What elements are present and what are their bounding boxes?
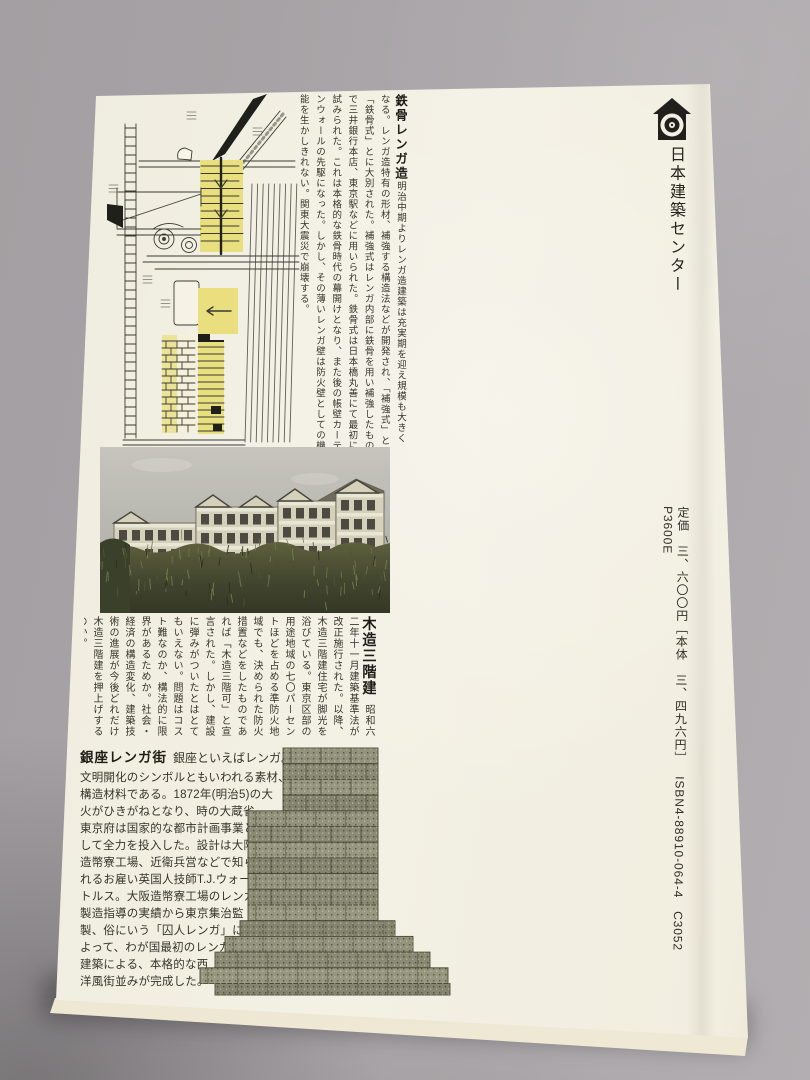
publisher-logo-icon — [652, 97, 692, 141]
book-cover: 鉄骨レンガ造明治中期よりレンガ造建築は充実期を迎え規模も大きくなる。レンガ造特有… — [0, 0, 810, 1080]
article-ginza-title: 銀座レンガ街 — [80, 750, 167, 765]
article-mokuzo-sangai: 木造三階建昭和六二年十一月建築基準法が改正施行された。以降、木造三階建住宅が脚光… — [84, 616, 376, 747]
price-text: 定価 三、六〇〇円［本体 三、四九六円］ — [673, 506, 690, 764]
book-back-cover-photo: 鉄骨レンガ造明治中期よりレンガ造建築は充実期を迎え規模も大きくなる。レンガ造特有… — [0, 0, 810, 1080]
article-mokuzo-title: 木造三階建 — [360, 616, 376, 696]
article-tekkotsu-renga: 鉄骨レンガ造明治中期よりレンガ造建築は充実期を迎え規模も大きくなる。レンガ造特有… — [290, 94, 408, 452]
section-drawing-figure — [103, 88, 303, 448]
article-tekkotsu-body: 明治中期よりレンガ造建築は充実期を迎え規模も大きくなる。レンガ造特有の形材、補強… — [298, 94, 406, 451]
apartment-photo — [100, 447, 390, 613]
article-mokuzo-body: 年十一月建築基準法が改正施行された。以降、木造三階建住宅が脚光を浴びている。東京… — [84, 616, 358, 737]
publisher-name: 日本建築センター — [657, 146, 687, 341]
brick-wall-illustration — [198, 745, 463, 998]
brick-highlight-lower — [198, 342, 224, 434]
article-tekkotsu-title: 鉄骨レンガ造 — [393, 94, 407, 181]
